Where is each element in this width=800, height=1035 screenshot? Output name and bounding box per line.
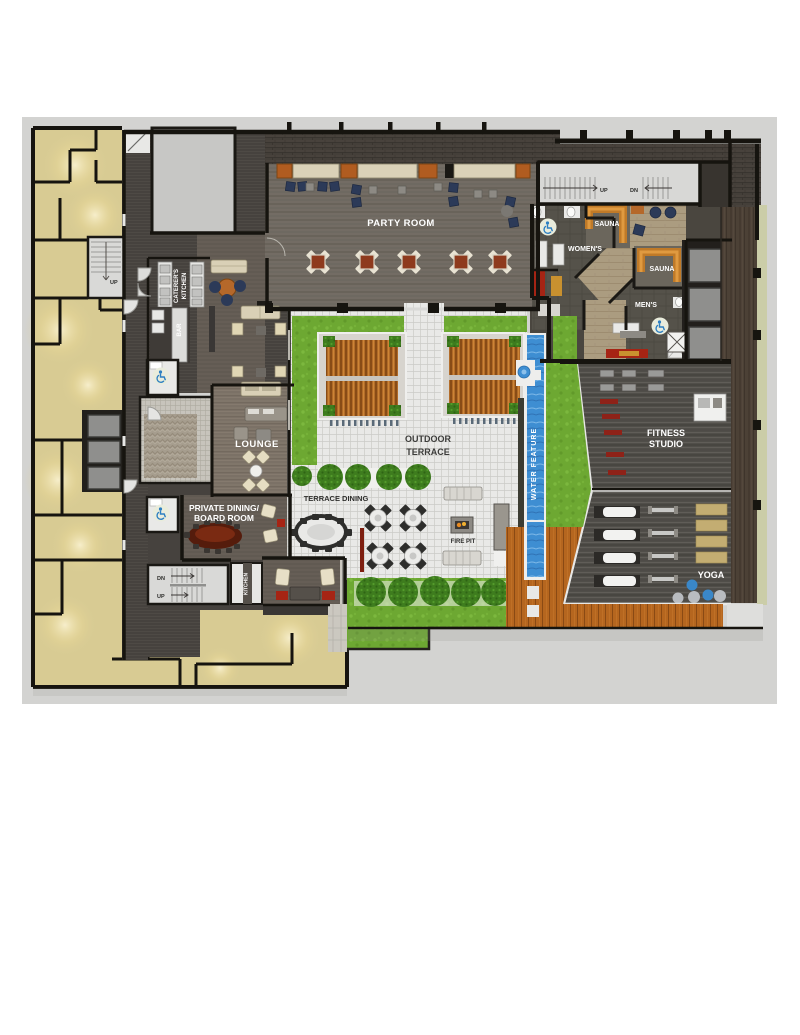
svg-text:KITCHEN: KITCHEN — [244, 573, 250, 596]
svg-text:FIRE PIT: FIRE PIT — [451, 539, 476, 545]
svg-text:SAUNA: SAUNA — [595, 221, 620, 228]
svg-text:BOARD ROOM: BOARD ROOM — [194, 513, 254, 523]
svg-text:FITNESS: FITNESS — [647, 428, 685, 438]
svg-text:LOUNGE: LOUNGE — [235, 439, 279, 450]
svg-text:DN: DN — [157, 576, 165, 582]
svg-text:UP: UP — [600, 188, 608, 194]
svg-text:CATERER'S: CATERER'S — [174, 269, 180, 303]
svg-text:WOMEN'S: WOMEN'S — [568, 246, 602, 253]
svg-text:PRIVATE DINING/: PRIVATE DINING/ — [189, 503, 260, 513]
svg-text:OUTDOOR: OUTDOOR — [405, 434, 451, 444]
svg-text:TERRACE: TERRACE — [406, 447, 450, 457]
svg-text:BAR: BAR — [177, 323, 183, 337]
svg-text:UP: UP — [110, 280, 118, 286]
svg-text:KITCHEN: KITCHEN — [182, 273, 188, 300]
svg-text:YOGA: YOGA — [698, 570, 725, 580]
svg-text:DN: DN — [630, 188, 638, 194]
svg-text:WATER FEATURE: WATER FEATURE — [531, 428, 538, 500]
svg-text:MEN'S: MEN'S — [635, 302, 657, 309]
svg-text:UP: UP — [157, 594, 165, 600]
svg-text:STUDIO: STUDIO — [649, 439, 683, 449]
svg-text:SAUNA: SAUNA — [650, 266, 675, 273]
svg-text:PARTY ROOM: PARTY ROOM — [367, 218, 435, 229]
svg-text:TERRACE DINING: TERRACE DINING — [304, 494, 369, 503]
